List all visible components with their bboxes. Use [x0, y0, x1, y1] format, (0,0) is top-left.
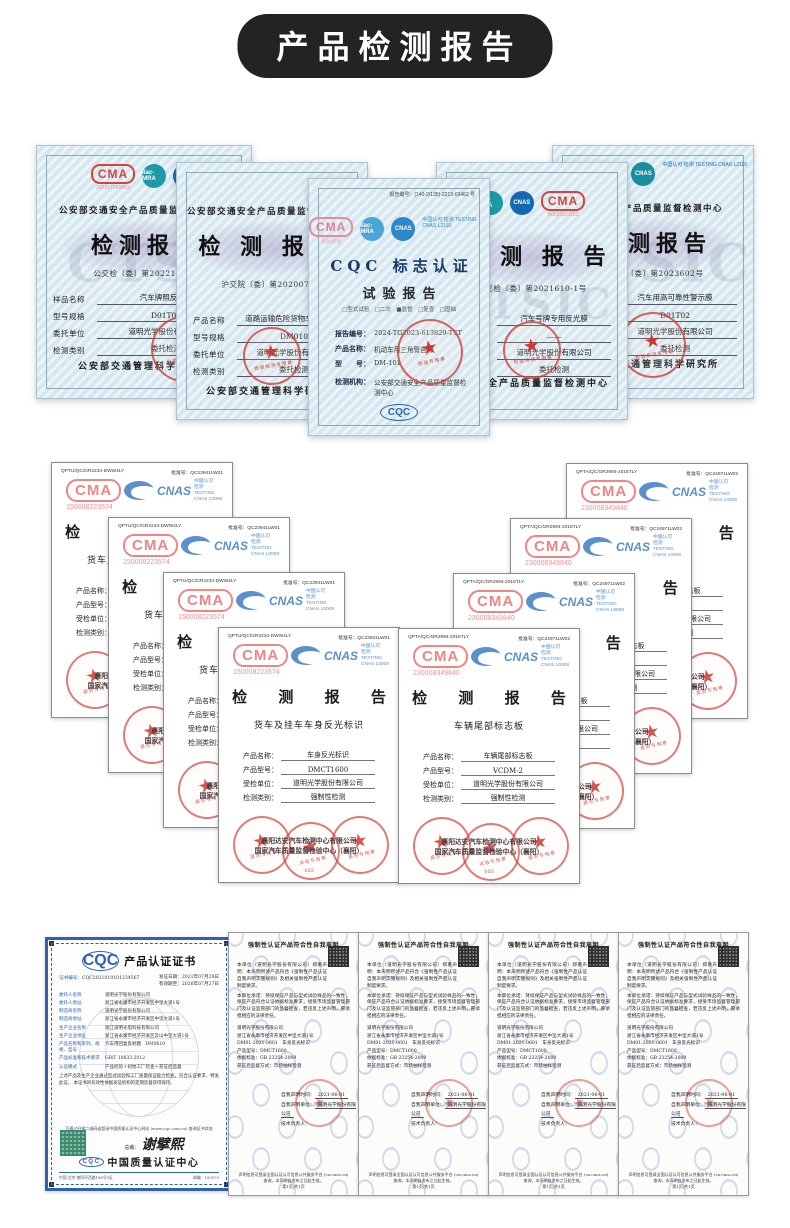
- cqc-mark-title: CQC 标志认证: [309, 255, 489, 276]
- cnas-logo-icon: CNAS 中国认可检测 TESTINGCNAS L0008: [583, 535, 681, 559]
- cnas-logo-icon: CNAS 中国认可检测 TESTINGCNAS L0008: [639, 480, 737, 504]
- field-row: 生产企业名称浙江道明光电科技有限公司: [59, 1026, 219, 1032]
- cma-logo-icon: CMA150008223574: [66, 479, 121, 511]
- cnas-logo-icon: CNAS: [391, 217, 415, 241]
- declaration-signature: 自我声明时间：2021-06-01 自我声明单位：道明光学股份有限公司 技术负责…: [411, 1091, 488, 1129]
- cnas-text: 中国认可 检测 TESTING CNAS L2110: [422, 217, 489, 230]
- cqc-logo: CQC: [82, 951, 120, 971]
- field-row: 制造商名称道明光学股份有限公司: [59, 1009, 219, 1015]
- field-row: 认证模式产品检验＋初始工厂检查＋获证后监督: [59, 1065, 219, 1071]
- cma-logo-icon: CMA150008223574: [178, 589, 233, 621]
- cnas-text: 中国认可检测 TESTINGCNAS L0008: [251, 534, 279, 558]
- field-row: 生产企业地址浙江省永康市经济开发区云山中坚大道1号: [59, 1034, 219, 1040]
- certificate-number-row: 证书编号：CQC2021010101234567 发证日期：2021年07月28…: [59, 975, 219, 989]
- cnas-swirl-icon: [526, 592, 556, 611]
- doc-code: QPTA/QC/GR2994-2016TLY: [576, 470, 637, 477]
- report-code: 报告编号：(140-2/135)-2213-03462 号: [389, 191, 475, 198]
- qr-code: [588, 946, 609, 967]
- declaration-signature: 自我声明时间：2021-06-01 自我声明单位：道明光学股份有限公司 技术负责…: [281, 1091, 358, 1129]
- certificate-header: CQC 产品认证证书: [59, 951, 219, 971]
- declaration-footer: 声明信息可登录全国认证认可信息公共服务平台 (cx.cnca.cn) 查询，本声…: [237, 1172, 350, 1190]
- logo-row: CMA150008223574 CNAS 中国认可检测 TESTINGCNAS …: [123, 534, 279, 566]
- cnas-logo-icon: CNAS 中国认可检测 TESTINGCNAS L0008: [471, 645, 569, 669]
- report-codes: QPTA/QC/GR2994-2016TLY 批准号：QC24971LW02: [520, 525, 682, 532]
- self-declaration-sheet-1: 强制性认证产品符合性自我声明 本单位（道明光学股份有限公司）郑重声明：本声明所述…: [228, 932, 359, 1196]
- cnas-text: 中国认可检测 TESTINGCNAS L0008: [306, 589, 334, 613]
- cnas-text: 中国认可检测 TESTINGCNAS L0008: [596, 590, 624, 614]
- cma-logo-icon: CMA150008223574: [123, 534, 178, 566]
- logo-row: CMA检验检测 ilac-MRA CNAS 中国认可 检测 TESTING CN…: [309, 217, 489, 245]
- field-row: 受检单位：道明光学股份有限公司: [423, 781, 555, 790]
- approval-code: 批准号：QC23941LW01: [228, 524, 280, 531]
- logo-row: CMA230008349840 CNAS 中国认可检测 TESTINGCNAS …: [413, 645, 569, 677]
- approval-code: 批准号：QC23941LW01: [338, 634, 390, 641]
- report-codes: QPTU/QC/GR2234-DWW4LY 批准号：QC23941LW01: [118, 524, 280, 531]
- approval-code: 批准号：QC24971LW02: [573, 580, 625, 587]
- cnas-text: 中国认可检测 TESTINGCNAS L0008: [709, 480, 737, 504]
- report-codes: QPTA/QC/GR2994-2016TLY 批准号：QC24971LW02: [408, 635, 570, 642]
- president-signature: 谢擘熙: [142, 1137, 184, 1153]
- field-row: 委托人名称道明光学股份有限公司: [59, 993, 219, 999]
- cqc-logo-small: CQC: [79, 1157, 105, 1167]
- declaration-paragraph-1: 本单位（道明光学股份有限公司）郑重声明：本声明所述产品符合《强制性产品认证自我声…: [237, 963, 327, 991]
- field-row: 委托人地址浙江省永康市经济开发区中坚大道1号: [59, 1001, 219, 1007]
- logo-row: CMA230008349840 CNAS 中国认可检测 TESTINGCNAS …: [525, 535, 681, 567]
- self-declaration-sheet-3: 强制性认证产品符合性自我声明 本单位（道明光学股份有限公司）郑重声明：本声明所述…: [488, 932, 619, 1196]
- certificate-title: 产品认证证书: [124, 953, 196, 969]
- testing-company-lines: 襄阳达安汽车检测中心有限公司 国家汽车质量监督检验中心（襄阳）: [399, 837, 579, 857]
- report-title: 检 测 报 告: [399, 687, 579, 708]
- logo-row: CMA150008223574 CNAS 中国认可检测 TESTINGCNAS …: [233, 644, 389, 676]
- cnas-swirl-icon: [639, 482, 669, 501]
- testing-company-lines: 襄阳达安汽车检测中心有限公司 国家汽车质量监督检验中心（襄阳）: [219, 836, 399, 856]
- cnas-swirl-icon: [236, 591, 266, 610]
- report-subtitle: 货车及挂车车身反光标识: [219, 718, 399, 731]
- cnas-logo-icon: CNAS 中国认可检测 TESTINGCNAS L0008: [291, 644, 389, 668]
- self-declaration-sheet-2: 强制性认证产品符合性自我声明 本单位（道明光学股份有限公司）郑重声明：本声明所述…: [358, 932, 489, 1196]
- cnas-text: 中国认可检测 TESTINGCNAS L0008: [653, 535, 681, 559]
- field-row: 产品型号：DMCT1600: [243, 766, 375, 775]
- cnas-logo-icon: CNAS 中国认可检测 TESTINGCNAS L0008: [236, 589, 334, 613]
- white-report-right-front: QPTA/QC/GR2994-2016TLY 批准号：QC24971LW02 C…: [398, 628, 580, 884]
- declaration-footer: 声明信息可登录全国认证认可信息公共服务平台 (cx.cnca.cn) 查询，本声…: [627, 1172, 740, 1190]
- declaration-paragraph-2: 本单位承诺：持续保证产品与型式试验样品的一致性，保证产品符合认证依据标准要求，接…: [237, 994, 350, 1022]
- qr-code: [718, 946, 739, 967]
- declaration-paragraph-2: 本单位承诺：持续保证产品与型式试验样品的一致性，保证产品符合认证依据标准要求，接…: [627, 994, 740, 1022]
- cnas-text: 中国认可 检测 TESTING CNAS L2110: [662, 162, 747, 168]
- approval-code: 批准号：QC23941LW01: [283, 579, 335, 586]
- qr-code: [458, 946, 479, 967]
- declaration-paragraph-1: 本单位（道明光学股份有限公司）郑重声明：本声明所述产品符合《强制性产品认证自我声…: [367, 963, 457, 991]
- seal-number: 103: [304, 868, 314, 874]
- cnas-swirl-icon: [471, 647, 501, 666]
- cqc-product-certificate: CQC 产品认证证书 证书编号：CQC2021010101234567 发证日期…: [45, 937, 233, 1191]
- check-type-line: □型式试验 □二次 ■监督 □复查 □国抽: [309, 305, 489, 313]
- cqc-logo: CQC: [309, 400, 489, 421]
- logo-row: CMA150008223574 CNAS 中国认可检测 TESTINGCNAS …: [66, 479, 222, 511]
- certificate-dates: 发证日期：2021年07月28日 有效期至：2026年07月27日: [159, 975, 219, 989]
- logo-row: CMA230008349840 CNAS 中国认可检测 TESTINGCNAS …: [581, 480, 737, 512]
- declaration-footer: 声明信息可登录全国认证认可信息公共服务平台 (cx.cnca.cn) 查询，本声…: [367, 1172, 480, 1190]
- cnas-swirl-icon: [583, 537, 613, 556]
- cma-logo-icon: CMA230008349840: [413, 645, 468, 677]
- cnas-logo-icon: CNAS: [631, 162, 655, 186]
- cnas-text: 中国认可检测 TESTINGCNAS L0008: [361, 644, 389, 668]
- white-report-left-front: QPTU/QC/GR2234-DWW4LY 批准号：QC23941LW01 CM…: [218, 627, 400, 883]
- field-row: 产品标准和技术要求GB/T 18833-2012: [59, 1056, 219, 1062]
- ilac-mra-logo-icon: ilac-MRA: [360, 217, 384, 241]
- declaration-signature: 自我声明时间：2021-06-01 自我声明单位：道明光学股份有限公司 技术负责…: [541, 1091, 618, 1129]
- declaration-paragraph-2: 本单位承诺：持续保证产品与型式试验样品的一致性，保证产品符合认证依据标准要求，接…: [367, 994, 480, 1022]
- logo-row: CMA150008223574 CNAS 中国认可检测 TESTINGCNAS …: [178, 589, 334, 621]
- report-codes: QPTU/QC/GR2234-DWW4LY 批准号：QC23941LW01: [61, 469, 223, 476]
- doc-code: QPTU/QC/GR2234-DWW4LY: [228, 634, 291, 641]
- seal-number: 103: [484, 869, 494, 875]
- signature-block: 总裁：谢擘熙: [82, 1134, 226, 1154]
- cma-logo-icon: CMA230008349840: [525, 535, 580, 567]
- cnas-text: 中国认可检测 TESTINGCNAS L0008: [194, 479, 222, 503]
- cnas-text: 中国认可检测 TESTINGCNAS L0008: [541, 645, 569, 669]
- doc-code: QPTU/QC/GR2234-DWW4LY: [61, 469, 124, 476]
- field-row: 受检单位：道明光学股份有限公司: [243, 780, 375, 789]
- cma-logo-icon: CMA150008223574: [233, 644, 288, 676]
- report-codes: QPTA/QC/GR2994-2016TLY 批准号：QC24971LW02: [576, 470, 738, 477]
- product-test-report-page: 产品检测报告 CTSI CMA2022170F0003 ilac-MRA CNA…: [0, 0, 790, 1228]
- cnas-logo-icon: CNAS 中国认可检测 TESTINGCNAS L0008: [181, 534, 279, 558]
- field-row: 产品名称：车身反光标识: [243, 752, 375, 761]
- field-row: 产品名称：车辆尾部标志板: [423, 753, 555, 762]
- field-row: 检测机构：公安部交通安全产品质量监督检测中心: [335, 377, 469, 397]
- declaration-paragraph-2: 本单位承诺：持续保证产品与型式试验样品的一致性，保证产品符合认证依据标准要求，接…: [497, 994, 610, 1022]
- logo-row: CMA230008349840 CNAS 中国认可检测 TESTINGCNAS …: [468, 590, 624, 622]
- certificate-body: CQC 产品认证证书 证书编号：CQC2021010101234567 发证日期…: [51, 943, 227, 1185]
- doc-code: QPTU/QC/GR2234-DWW4LY: [173, 579, 236, 586]
- cma-logo-icon: CMA2022170F0003: [91, 164, 135, 191]
- cma-logo-icon: CMA检验检测: [309, 217, 353, 245]
- cnas-swirl-icon: [181, 536, 211, 555]
- cma-logo-icon: CMA230008349840: [581, 480, 636, 512]
- verification-note: 可通过扫描二维码或登录中国质量认证中心网站 (www.cqc.com.cn) 查…: [64, 1126, 214, 1132]
- field-list: 产品名称：车辆尾部标志板 产品型号：VCDM-2 受检单位：道明光学股份有限公司…: [423, 753, 555, 809]
- field-row: 制造商地址浙江省永康市经济开发区中坚大道1号: [59, 1017, 219, 1023]
- declaration-info: 道明光学股份有限公司 浙江省永康市经济开发区中坚大道1号 DM01-2021-0…: [627, 1025, 740, 1070]
- report-subtitle: 车辆尾部标志板: [399, 719, 579, 732]
- report-codes: QPTU/QC/GR2234-DWW4LY 批准号：QC23941LW01: [173, 579, 335, 586]
- field-row: 产品名称和系列、规格、型号汽车用回复反射膜 DM9610: [59, 1042, 219, 1054]
- issuer-org-line: CQC 中国质量认证中心: [52, 1154, 226, 1169]
- ilac-mra-logo-icon: ilac-MRA: [142, 164, 166, 188]
- doc-code: QPTU/QC/GR2234-DWW4LY: [118, 524, 181, 531]
- approval-code: 批准号：QC24971LW02: [686, 470, 738, 477]
- doc-code: QPTA/QC/GR2994-2016TLY: [408, 635, 469, 642]
- approval-code: 批准号：QC23941LW01: [171, 469, 223, 476]
- field-row: 产品型号：VCDM-2: [423, 767, 555, 776]
- field-list: 产品名称：车身反光标识 产品型号：DMCT1600 受检单位：道明光学股份有限公…: [243, 752, 375, 808]
- approval-code: 批准号：QC24971LW02: [518, 635, 570, 642]
- certificate-number: 证书编号：CQC2021010101234567: [59, 975, 140, 989]
- cma-logo-icon: CMAN0020021152: [541, 191, 585, 218]
- declaration-info: 道明光学股份有限公司 浙江省永康市经济开发区中坚大道1号 DM01-2021-0…: [497, 1025, 610, 1070]
- declaration-footer: 声明信息可登录全国认证认可信息公共服务平台 (cx.cnca.cn) 查询，本声…: [497, 1172, 610, 1190]
- page-title: 产品检测报告: [237, 14, 552, 78]
- declaration-paragraph-1: 本单位（道明光学股份有限公司）郑重声明：本声明所述产品符合《强制性产品认证自我声…: [497, 963, 587, 991]
- declaration-paragraph-1: 本单位（道明光学股份有限公司）郑重声明：本声明所述产品符合《强制性产品认证自我声…: [627, 963, 717, 991]
- cnas-logo-icon: CNAS 中国认可检测 TESTINGCNAS L0008: [526, 590, 624, 614]
- qr-code: [328, 946, 349, 967]
- certificate-paragraph: 上述产品及生产企业通过型式试验和工厂质量保证能力检查，符合认证要求，特发此证。 …: [59, 1074, 219, 1087]
- cnas-swirl-icon: [291, 646, 321, 665]
- approval-code: 批准号：QC24971LW02: [630, 525, 682, 532]
- field-row: 检测类别：强制性检测: [243, 794, 375, 803]
- self-declaration-sheet-4: 强制性认证产品符合性自我声明 本单位（道明光学股份有限公司）郑重声明：本声明所述…: [618, 932, 749, 1196]
- cma-logo-icon: CMA230008349840: [468, 590, 523, 622]
- cnas-swirl-icon: [124, 481, 154, 500]
- test-report-title: 试验报告: [309, 283, 489, 302]
- certificate-cqc-test: 报告编号：(140-2/135)-2213-03462 号 CMA检验检测 il…: [308, 178, 490, 436]
- report-codes: QPTA/QC/GR2994-2016TLY 批准号：QC24971LW02: [463, 580, 625, 587]
- declaration-info: 道明光学股份有限公司 浙江省永康市经济开发区中坚大道1号 DM01-2021-0…: [367, 1025, 480, 1070]
- cnas-logo-icon: CNAS: [510, 191, 534, 215]
- doc-code: QPTA/QC/GR2994-2016TLY: [463, 580, 524, 587]
- certificate-fields: 委托人名称道明光学股份有限公司 委托人地址浙江省永康市经济开发区中坚大道1号 制…: [59, 993, 219, 1071]
- field-row: 检测类别：强制性检测: [423, 795, 555, 804]
- certificate-footer: 中国·北京·南四环西路188号9区 邮编：100070: [59, 1172, 219, 1181]
- declaration-info: 道明光学股份有限公司 浙江省永康市经济开发区中坚大道1号 DM01-2021-0…: [237, 1025, 350, 1070]
- declaration-signature: 自我声明时间：2021-06-01 自我声明单位：道明光学股份有限公司 技术负责…: [671, 1091, 748, 1129]
- report-codes: QPTU/QC/GR2234-DWW4LY 批准号：QC23941LW01: [228, 634, 390, 641]
- doc-code: QPTA/QC/GR2994-2016TLY: [520, 525, 581, 532]
- cnas-logo-icon: CNAS 中国认可检测 TESTINGCNAS L0008: [124, 479, 222, 503]
- report-title: 检 测 报 告: [219, 686, 399, 707]
